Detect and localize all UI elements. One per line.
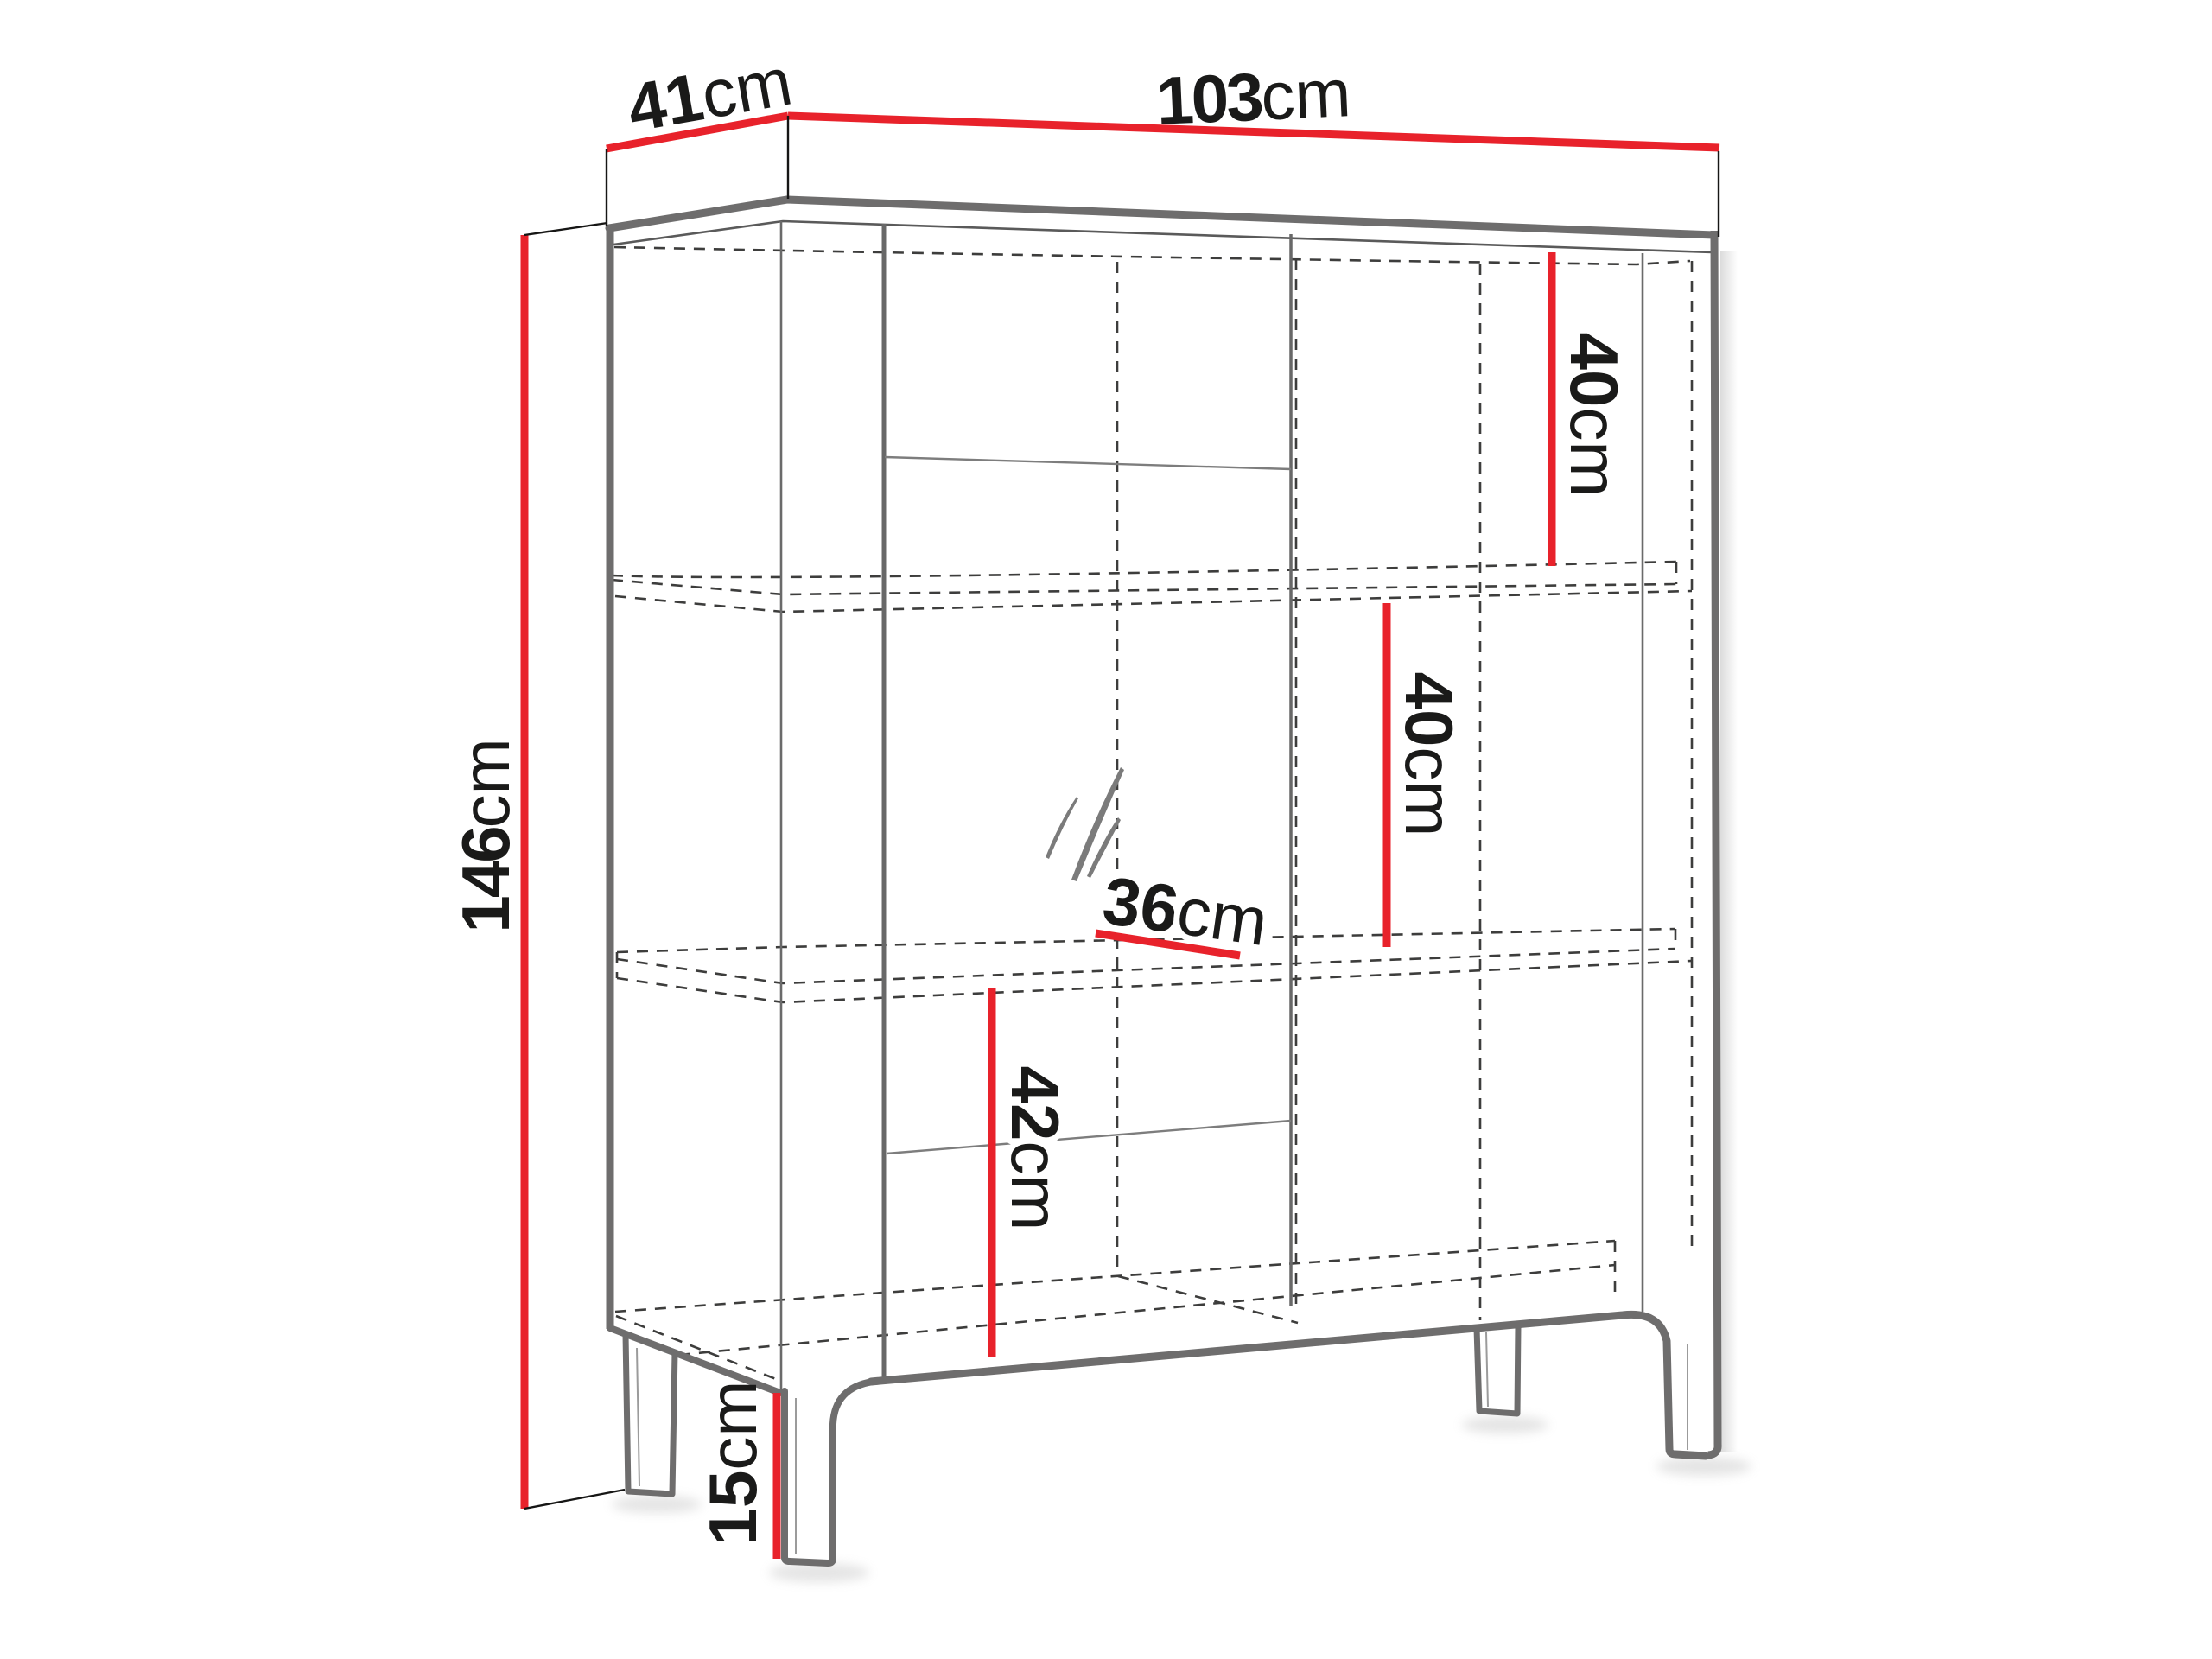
svg-text:42cm: 42cm bbox=[997, 1066, 1073, 1231]
svg-text:146cm: 146cm bbox=[448, 738, 524, 932]
svg-text:40cm: 40cm bbox=[1391, 672, 1467, 837]
svg-text:15cm: 15cm bbox=[695, 1381, 771, 1546]
svg-text:103cm: 103cm bbox=[1154, 54, 1352, 139]
svg-text:40cm: 40cm bbox=[1556, 333, 1632, 498]
